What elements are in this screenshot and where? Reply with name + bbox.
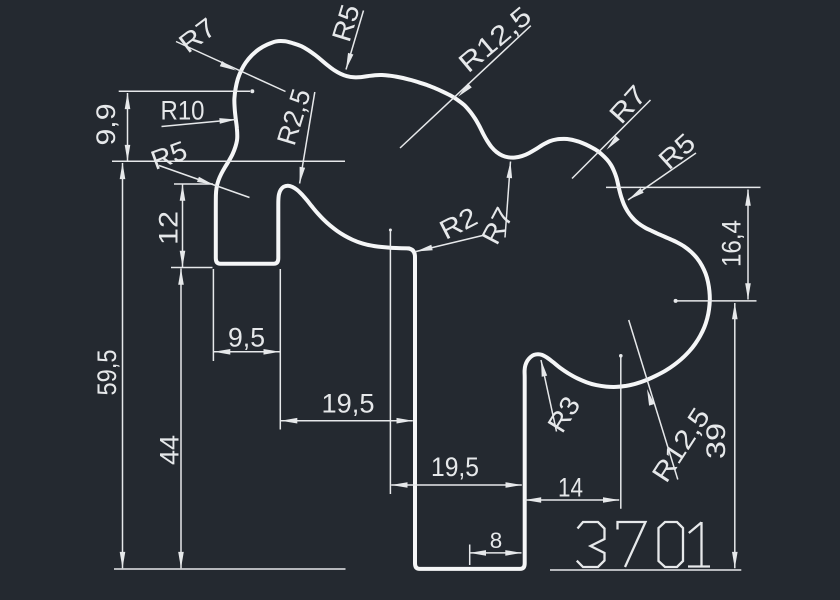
svg-text:59,5: 59,5 <box>92 350 122 396</box>
svg-text:8: 8 <box>490 528 503 553</box>
svg-text:16,4: 16,4 <box>717 220 747 267</box>
svg-text:14: 14 <box>558 473 583 503</box>
svg-text:9,9: 9,9 <box>91 104 121 146</box>
svg-text:44: 44 <box>155 435 185 465</box>
svg-text:19,5: 19,5 <box>322 389 375 419</box>
svg-text:R10: R10 <box>161 96 205 126</box>
svg-text:9,5: 9,5 <box>228 323 265 353</box>
svg-text:12: 12 <box>154 211 184 245</box>
svg-text:19,5: 19,5 <box>431 452 479 482</box>
